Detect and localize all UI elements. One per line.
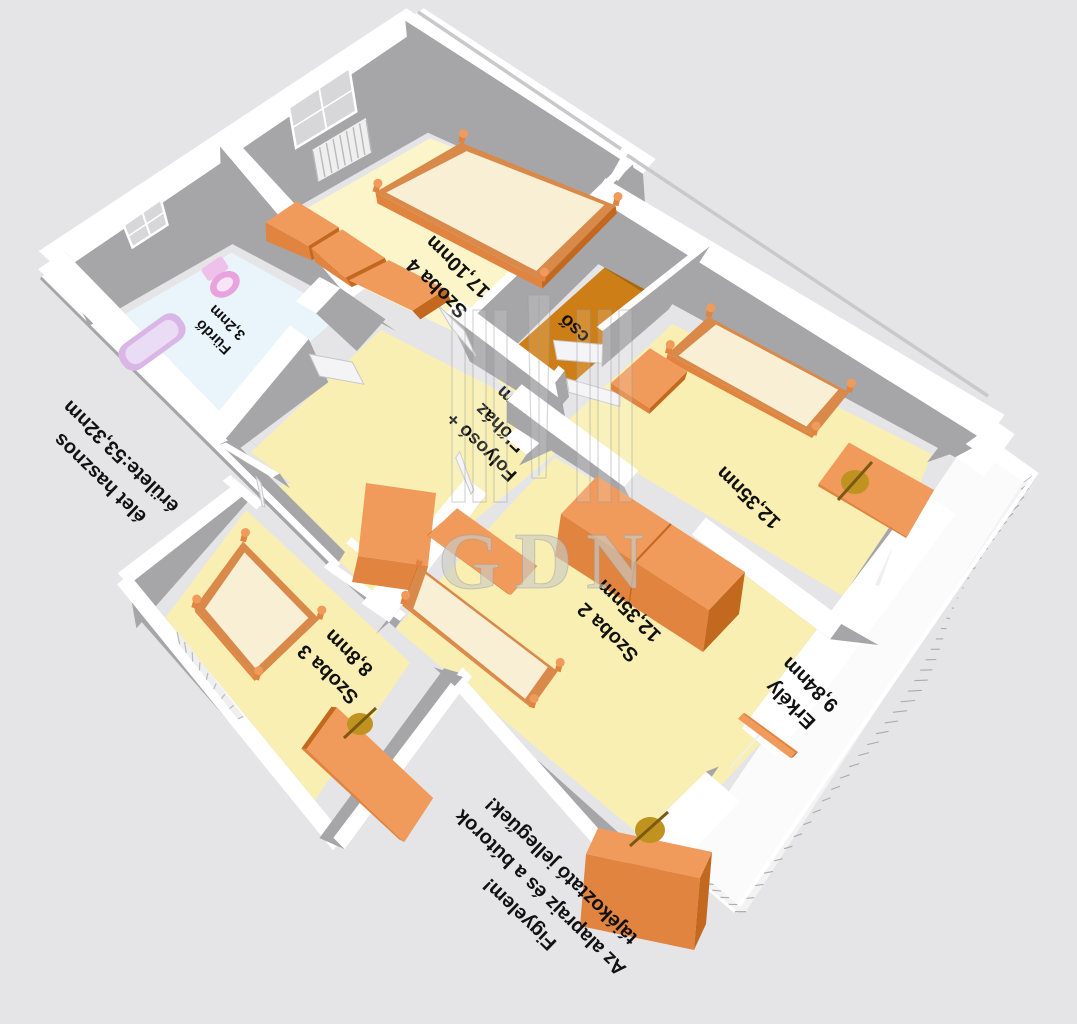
- svg-text:GDN: GDN: [438, 518, 658, 606]
